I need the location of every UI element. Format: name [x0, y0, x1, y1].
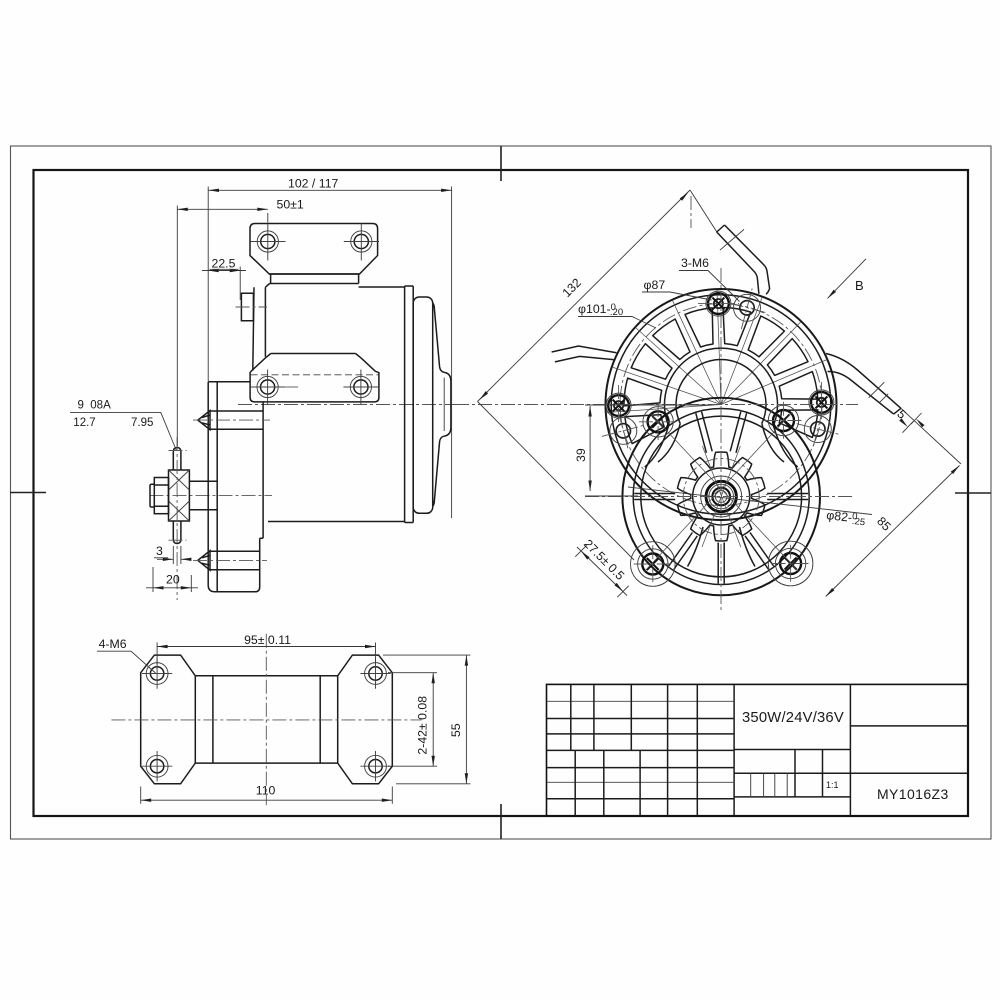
- svg-text:12.7: 12.7: [73, 417, 95, 429]
- svg-text:50±1: 50±1: [277, 198, 304, 212]
- svg-text:3: 3: [156, 544, 163, 558]
- svg-text:MY1016Z3: MY1016Z3: [877, 786, 949, 802]
- svg-text:φ87: φ87: [644, 278, 666, 292]
- svg-text:39: 39: [574, 448, 588, 462]
- svg-text:102 / 117: 102 / 117: [288, 177, 339, 191]
- svg-text:9 08A: 9 08A: [78, 400, 112, 412]
- svg-text:20: 20: [166, 573, 180, 587]
- svg-text:95± 0.11: 95± 0.11: [244, 633, 291, 647]
- svg-text:1:1: 1:1: [826, 780, 839, 790]
- svg-text:350W/24V/36V: 350W/24V/36V: [742, 710, 844, 726]
- svg-text:4-M6: 4-M6: [99, 637, 127, 651]
- svg-text:55: 55: [449, 723, 463, 737]
- svg-text:B: B: [855, 278, 864, 293]
- svg-text:2-42± 0.08: 2-42± 0.08: [416, 696, 430, 755]
- svg-text:110: 110: [256, 784, 276, 798]
- svg-text:7.95: 7.95: [131, 417, 153, 429]
- svg-text:22.5: 22.5: [212, 257, 236, 271]
- svg-text:3-M6: 3-M6: [681, 256, 709, 270]
